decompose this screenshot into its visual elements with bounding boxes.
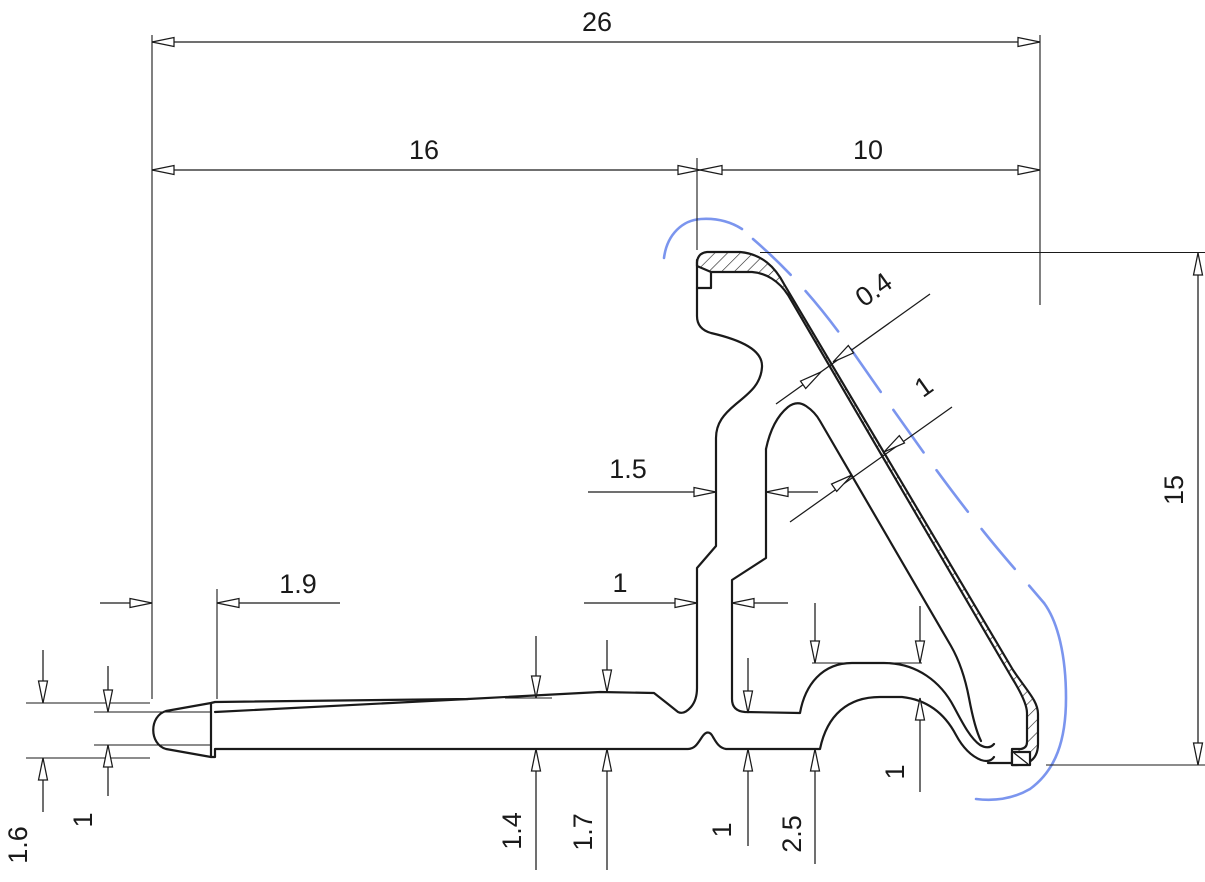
dim-arm-thickness-step: 1.7 (568, 640, 612, 870)
reference-dashed-diagonal (753, 239, 1044, 603)
profile-hook-notch (697, 272, 711, 288)
dim-lip-gap: 1 (790, 370, 952, 522)
dim-label-left-width: 16 (409, 135, 439, 165)
profile-main-outline (153, 260, 994, 761)
dim-label-tip-outer: 1.6 (3, 826, 33, 864)
dim-right-width: 10 (700, 135, 1040, 175)
dim-label-arm-mid: 1.4 (497, 812, 527, 850)
dim-label-lip-thickness: 0.4 (850, 267, 898, 313)
dim-arm-thickness-mid: 1.4 (497, 636, 541, 870)
dim-tip-outer-height: 1.6 (3, 650, 48, 864)
dim-web-lower-thickness: 1 (584, 568, 788, 608)
dim-overall-height: 15 (1159, 253, 1203, 765)
dim-label-tip-inner: 1 (68, 812, 98, 827)
dim-label-lip-gap: 1 (909, 370, 939, 403)
extension-lines (26, 35, 1205, 765)
dim-label-right-width: 10 (853, 135, 883, 165)
drawing-canvas: 26 16 10 15 1.9 (0, 0, 1205, 882)
dim-label-web-lower: 1 (612, 568, 627, 598)
dim-label-bulb-wall: 1 (880, 764, 910, 779)
dimensions: 26 16 10 15 1.9 (3, 7, 1203, 870)
dim-label-web-upper: 1.5 (609, 454, 647, 484)
dim-bulb-wall-thickness: 1 (880, 606, 925, 792)
dim-tip-step: 1.9 (100, 569, 340, 608)
dim-label-overall-width: 26 (582, 7, 612, 37)
dim-label-overall-height: 15 (1159, 475, 1189, 505)
dim-label-bulb-height: 2.5 (777, 815, 807, 853)
profile-hypotenuse (766, 403, 981, 741)
technical-drawing-page: 26 16 10 15 1.9 (0, 0, 1205, 882)
dim-bulb-height: 2.5 (777, 603, 820, 864)
dim-left-width: 16 (152, 135, 700, 175)
dim-label-arm-step: 1.7 (568, 813, 598, 851)
dim-tip-inner-height: 1 (68, 666, 113, 828)
profile-body (153, 260, 1012, 763)
dim-lip-thickness: 0.4 (776, 267, 930, 404)
dim-web-upper-thickness: 1.5 (588, 454, 818, 497)
dim-label-base-thickness: 1 (707, 822, 737, 837)
dim-overall-width: 26 (152, 7, 1040, 47)
dim-label-tip-step: 1.9 (279, 569, 317, 599)
dim-base-thickness: 1 (707, 658, 753, 846)
